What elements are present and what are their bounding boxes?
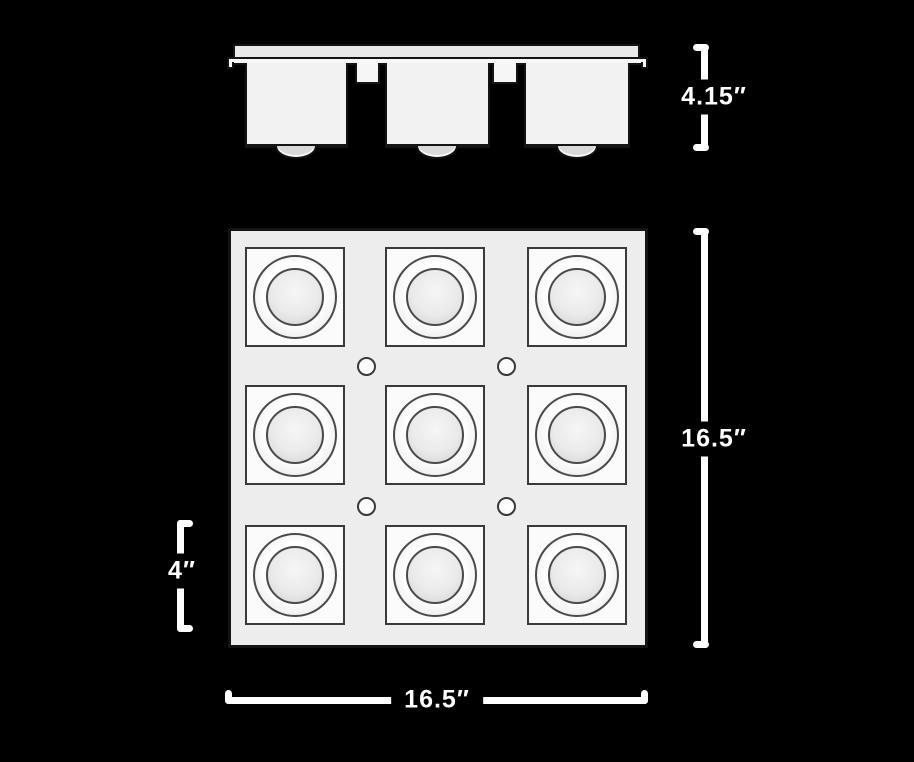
light-cell	[245, 247, 345, 347]
dimension-end-cap	[225, 690, 232, 704]
dimension-end-cap	[177, 520, 193, 527]
fixture-panel	[228, 228, 648, 648]
light-cell	[527, 525, 627, 625]
technical-drawing-canvas: 4.15″ 16.5″ 16.5″ 4″	[0, 0, 914, 762]
screw-hole	[497, 357, 516, 376]
light-cell	[245, 525, 345, 625]
light-lens	[548, 268, 606, 326]
light-cell	[385, 247, 485, 347]
light-bezel	[535, 393, 619, 477]
dimension-end-cap	[177, 625, 193, 632]
light-bezel	[535, 255, 619, 339]
light-cell	[245, 385, 345, 485]
screw-hole	[497, 497, 516, 516]
lamp-dome	[275, 146, 317, 159]
screw-hole	[357, 497, 376, 516]
dimension-end-cap	[641, 690, 648, 704]
light-lens	[406, 546, 464, 604]
screw-hole	[357, 357, 376, 376]
lamp-housing	[385, 63, 490, 148]
light-lens	[266, 546, 324, 604]
lamp-dome	[556, 146, 598, 159]
light-bezel	[253, 393, 337, 477]
dimension-end-cap	[693, 641, 709, 648]
mounting-tab	[492, 63, 518, 84]
light-lens	[266, 406, 324, 464]
dimension-label-housing-height: 4.15″	[672, 80, 756, 115]
dimension-label-fixture-height: 16.5″	[672, 422, 756, 457]
light-lens	[548, 546, 606, 604]
mounting-tab	[355, 63, 380, 84]
lamp-housing	[524, 63, 630, 148]
light-cell	[385, 525, 485, 625]
dimension-end-cap	[693, 228, 709, 235]
trim-flange-step-right	[641, 62, 648, 69]
light-bezel	[393, 255, 477, 339]
light-bezel	[393, 533, 477, 617]
light-cell	[385, 385, 485, 485]
lamp-housing	[245, 63, 348, 148]
light-bezel	[253, 533, 337, 617]
light-bezel	[535, 533, 619, 617]
lamp-dome	[416, 146, 458, 159]
light-cell	[527, 247, 627, 347]
light-lens	[548, 406, 606, 464]
trim-flange-step-left	[227, 62, 234, 69]
light-lens	[406, 268, 464, 326]
light-bezel	[393, 393, 477, 477]
dimension-end-cap	[693, 144, 709, 151]
light-lens	[266, 268, 324, 326]
light-bezel	[253, 255, 337, 339]
dimension-label-fixture-width: 16.5″	[391, 683, 483, 718]
dimension-end-cap	[693, 44, 709, 51]
light-cell	[527, 385, 627, 485]
dimension-label-cell-size: 4″	[159, 554, 205, 589]
light-lens	[406, 406, 464, 464]
